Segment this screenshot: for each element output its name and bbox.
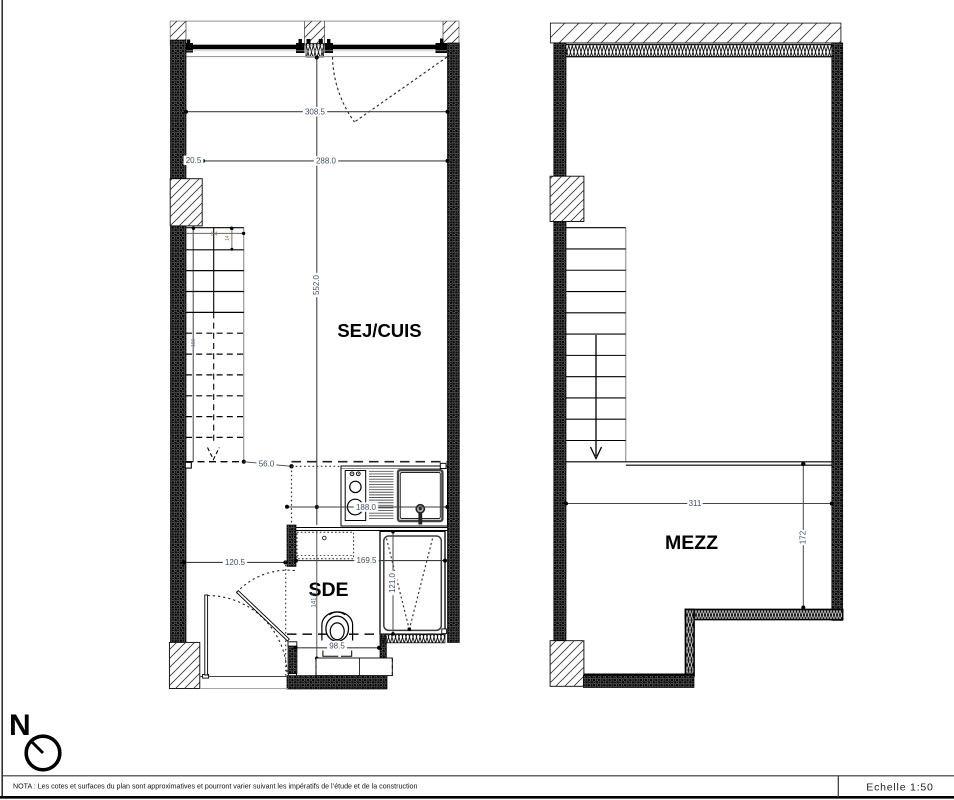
svg-text:120.5: 120.5 — [225, 558, 246, 567]
svg-text:150: 150 — [191, 338, 197, 347]
svg-text:SEJ/CUIS: SEJ/CUIS — [337, 320, 421, 341]
svg-text:311: 311 — [689, 499, 702, 508]
svg-text:N: N — [9, 709, 31, 742]
svg-text:288.0: 288.0 — [316, 157, 337, 166]
svg-text:NOTA : Les cotes et surfaces d: NOTA : Les cotes et surfaces du plan son… — [13, 783, 417, 791]
svg-text:169.5: 169.5 — [356, 556, 377, 565]
svg-text:1.4: 1.4 — [211, 232, 218, 238]
svg-text:14: 14 — [225, 235, 231, 241]
svg-text:121.0: 121.0 — [388, 572, 397, 593]
svg-text:141.5: 141.5 — [312, 592, 318, 608]
svg-text:172: 172 — [798, 530, 807, 544]
svg-text:308.5: 308.5 — [305, 108, 326, 117]
svg-text:MEZZ: MEZZ — [665, 532, 718, 554]
svg-text:20.5: 20.5 — [186, 156, 202, 165]
svg-text:98.5: 98.5 — [329, 641, 345, 650]
svg-text:Echelle 1:50: Echelle 1:50 — [866, 781, 933, 793]
svg-text:188.0: 188.0 — [356, 503, 377, 512]
svg-text:552.0: 552.0 — [312, 274, 321, 295]
svg-text:56.0: 56.0 — [259, 459, 275, 468]
